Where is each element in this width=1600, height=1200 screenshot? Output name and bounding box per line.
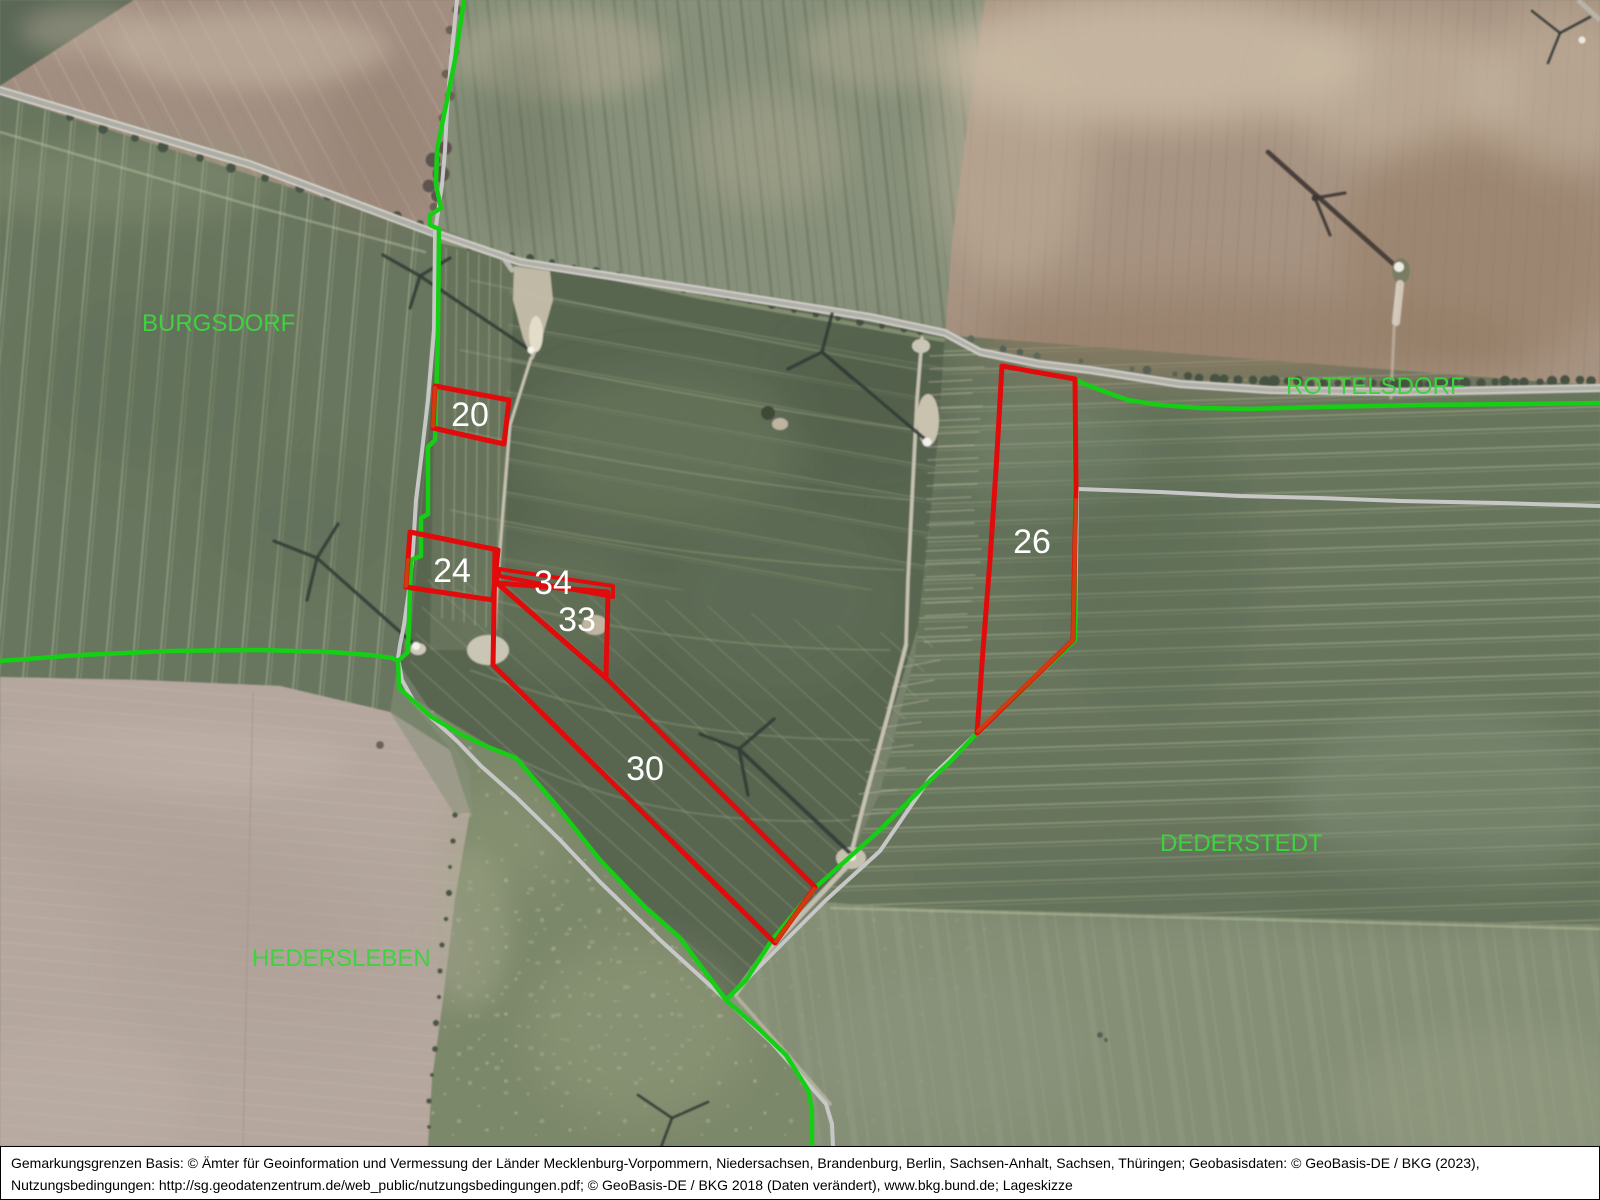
svg-text:HEDERSLEBEN: HEDERSLEBEN	[252, 945, 431, 972]
svg-text:DEDERSTEDT: DEDERSTEDT	[1160, 830, 1323, 857]
svg-text:30: 30	[626, 750, 664, 788]
svg-text:ROTTELSDORF: ROTTELSDORF	[1286, 373, 1465, 400]
svg-text:26: 26	[1013, 523, 1051, 561]
svg-text:24: 24	[433, 552, 471, 590]
svg-text:20: 20	[451, 396, 489, 434]
svg-text:BURGSDORF: BURGSDORF	[142, 310, 295, 337]
svg-text:33: 33	[558, 601, 596, 639]
svg-text:34: 34	[534, 564, 572, 602]
